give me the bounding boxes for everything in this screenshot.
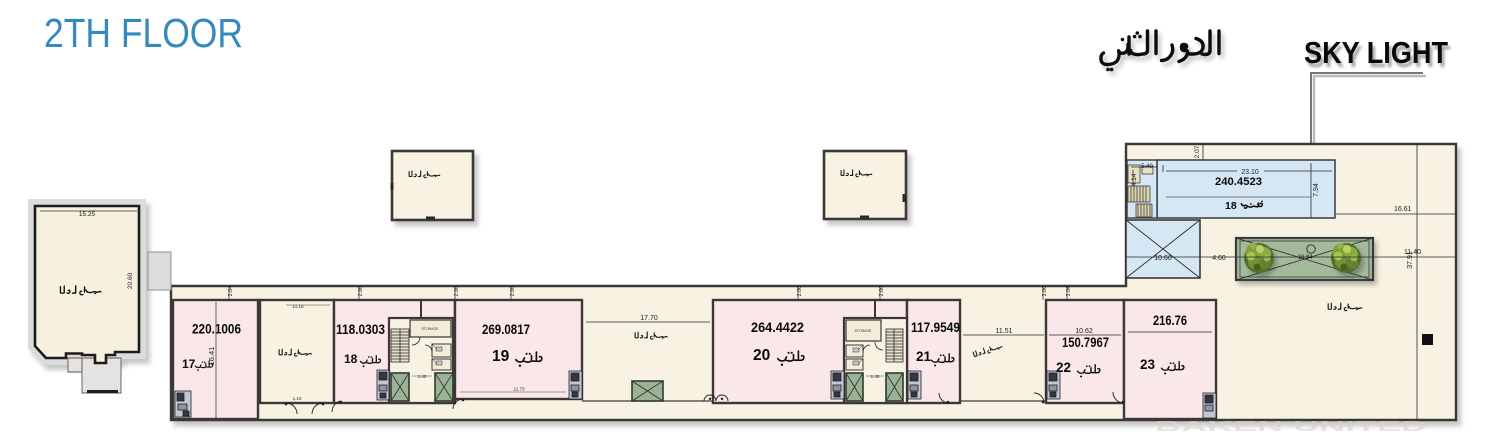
svg-text:20.60: 20.60 (127, 272, 134, 289)
svg-text:21: 21 (916, 349, 932, 364)
svg-text:2.04: 2.04 (228, 286, 234, 297)
svg-text:2.00: 2.00 (358, 286, 364, 297)
svg-text:BAKEN UNITED: BAKEN UNITED (1155, 418, 1427, 435)
svg-text:23.10: 23.10 (1241, 169, 1259, 176)
svg-text:150.7967: 150.7967 (1062, 335, 1109, 350)
svg-text:11.51: 11.51 (996, 328, 1013, 335)
svg-text:2.06: 2.06 (1066, 286, 1072, 297)
svg-text:22: 22 (1056, 360, 1071, 375)
svg-text:2.07: 2.07 (1194, 145, 1201, 158)
svg-text:11.73: 11.73 (514, 387, 525, 392)
svg-text:1.40: 1.40 (418, 374, 427, 379)
svg-text:18: 18 (1225, 200, 1237, 212)
svg-text:4.14: 4.14 (1131, 173, 1138, 186)
svg-text:7.94: 7.94 (1313, 183, 1320, 197)
svg-text:15.25: 15.25 (79, 211, 96, 218)
svg-text:264.4422: 264.4422 (751, 320, 804, 335)
svg-text:10.62: 10.62 (1075, 328, 1093, 335)
svg-text:STORAGE: STORAGE (421, 327, 439, 331)
svg-text:2TH FLOOR: 2TH FLOOR (44, 10, 243, 56)
svg-text:2.00: 2.00 (879, 286, 885, 297)
svg-text:10.60: 10.60 (1154, 255, 1172, 262)
svg-text:118.0303: 118.0303 (336, 322, 385, 337)
svg-text:16.41: 16.41 (207, 347, 216, 366)
svg-text:2.00: 2.00 (510, 286, 516, 297)
svg-text:2.00: 2.00 (797, 286, 803, 297)
svg-text:20: 20 (753, 347, 770, 364)
svg-text:269.0817: 269.0817 (482, 322, 530, 337)
svg-text:1.10: 1.10 (293, 396, 302, 401)
svg-text:240.4523: 240.4523 (1215, 176, 1262, 188)
svg-text:4.60: 4.60 (1212, 255, 1226, 262)
svg-text:19: 19 (492, 348, 510, 365)
svg-text:2.00: 2.00 (1042, 286, 1048, 297)
svg-text:220.1006: 220.1006 (192, 322, 241, 337)
svg-text:16.61: 16.61 (1394, 206, 1412, 213)
svg-text:37.91: 37.91 (1407, 251, 1414, 269)
svg-text:2.00: 2.00 (454, 286, 460, 297)
svg-text:23: 23 (1140, 357, 1156, 372)
svg-text:216.76: 216.76 (1153, 313, 1187, 328)
svg-text:18: 18 (344, 352, 358, 366)
svg-text:SKY LIGHT: SKY LIGHT (1304, 35, 1448, 70)
svg-text:1.40: 1.40 (871, 374, 880, 379)
svg-text:STORAGE: STORAGE (854, 329, 872, 333)
svg-text:18.94: 18.94 (1297, 255, 1313, 261)
svg-text:17: 17 (182, 357, 196, 371)
svg-text:5.40: 5.40 (1141, 164, 1153, 170)
svg-text:117.9549: 117.9549 (911, 320, 960, 335)
svg-text:17.70: 17.70 (640, 315, 658, 322)
